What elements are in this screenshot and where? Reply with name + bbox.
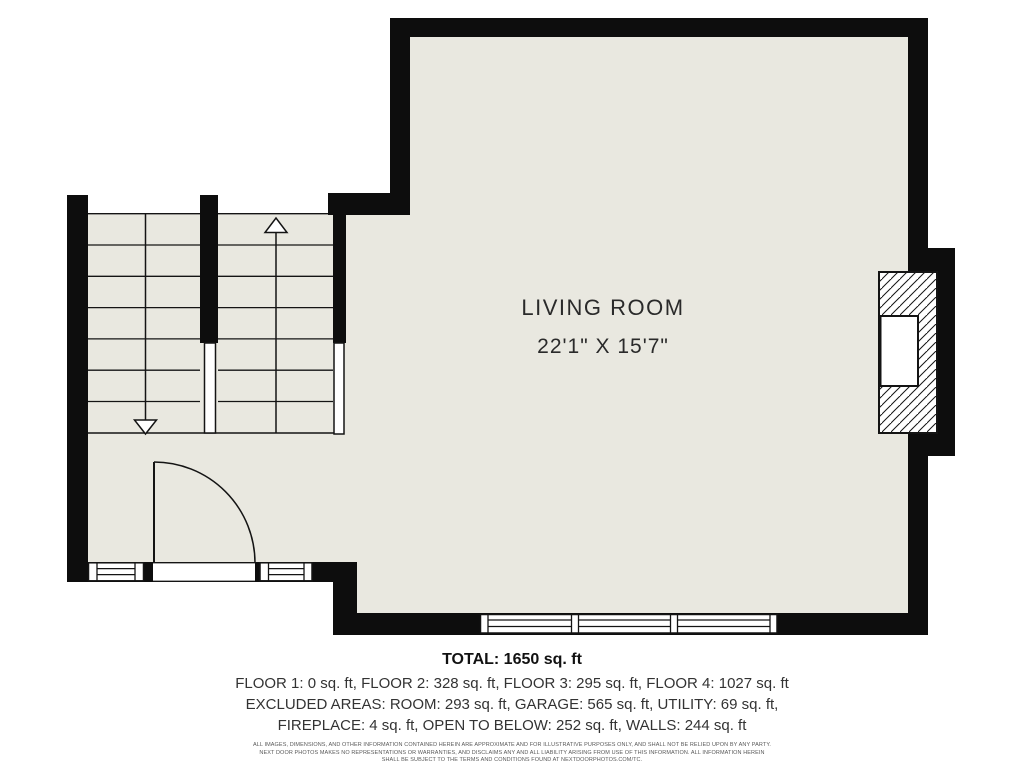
floor-plan-page: LIVING ROOM 22'1" X 15'7" TOTAL: 1650 sq… xyxy=(0,0,1024,768)
disclaimer-line-3: SHALL BE SUBJECT TO THE TERMS AND CONDIT… xyxy=(0,757,1024,765)
window-left-1 xyxy=(89,563,144,581)
total-area: TOTAL: 1650 sq. ft xyxy=(0,651,1024,669)
disclaimer-line-1: ALL IMAGES, DIMENSIONS, AND OTHER INFORM… xyxy=(0,742,1024,750)
firebox xyxy=(881,316,919,386)
wall-left-upper xyxy=(390,18,410,215)
room-dimensions: 22'1" X 15'7" xyxy=(537,335,669,358)
excluded-areas-line-2: FIREPLACE: 4 sq. ft, OPEN TO BELOW: 252 … xyxy=(0,715,1024,736)
window-bottom-band xyxy=(481,615,778,634)
area-summary: TOTAL: 1650 sq. ft FLOOR 1: 0 sq. ft, FL… xyxy=(0,651,1024,765)
fireplace xyxy=(879,272,937,433)
room-label: LIVING ROOM xyxy=(521,295,684,320)
disclaimer: ALL IMAGES, DIMENSIONS, AND OTHER INFORM… xyxy=(0,742,1024,765)
wall-stair-right xyxy=(333,215,346,343)
excluded-areas-line-1: EXCLUDED AREAS: ROOM: 293 sq. ft, GARAGE… xyxy=(0,694,1024,715)
stair-railing-right xyxy=(334,343,344,434)
wall-stair-middle xyxy=(200,195,218,343)
wall-stair-top xyxy=(328,193,410,215)
wall-top xyxy=(390,18,928,37)
wall-left xyxy=(67,195,88,582)
floor-plan-svg: LIVING ROOM 22'1" X 15'7" xyxy=(0,0,1024,648)
stair-railing-middle xyxy=(205,343,216,433)
disclaimer-line-2: NEXT DOOR PHOTOS MAKES NO REPRESENTATION… xyxy=(0,750,1024,758)
window-left-2 xyxy=(260,563,312,581)
door-opening xyxy=(153,562,255,582)
floors-breakdown: FLOOR 1: 0 sq. ft, FLOOR 2: 328 sq. ft, … xyxy=(0,673,1024,694)
